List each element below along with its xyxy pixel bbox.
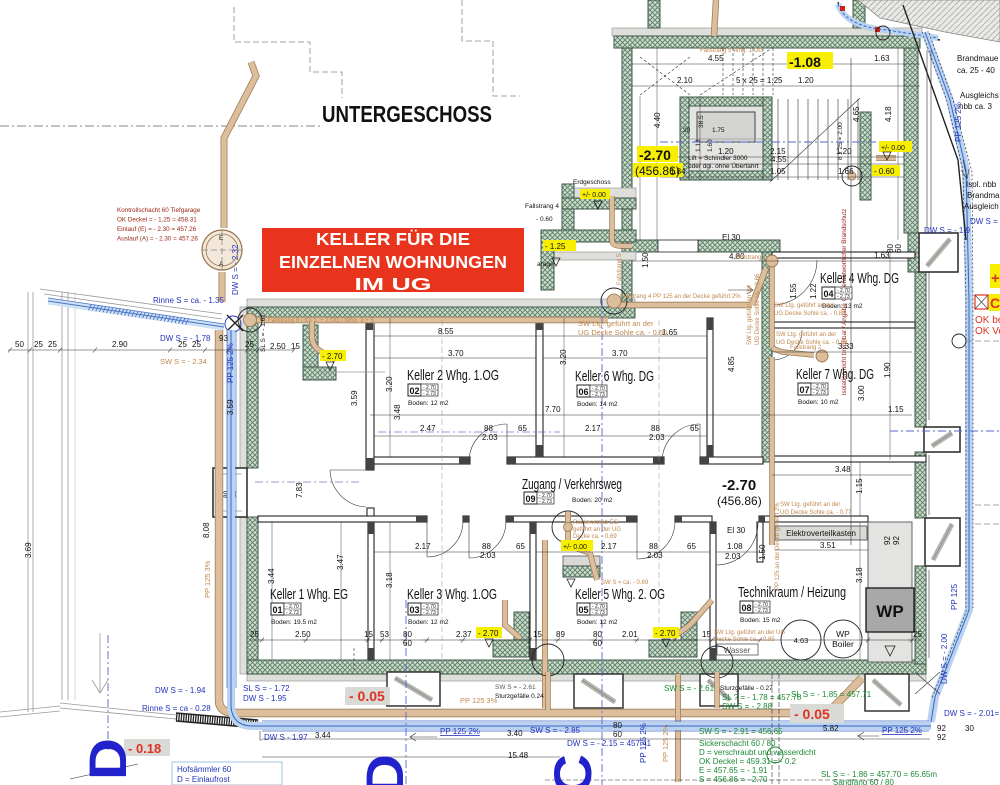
svg-text:Rinne S = ca - 0.28: Rinne S = ca - 0.28 <box>142 704 211 713</box>
svg-text:SW Ltg. geführt an der: SW Ltg. geführt an der <box>776 332 836 338</box>
svg-text:1.22: 1.22 <box>809 283 818 299</box>
svg-text:1.50: 1.50 <box>641 252 650 268</box>
svg-text:1.15: 1.15 <box>855 478 864 494</box>
svg-text:SW S = - 2.34: SW S = - 2.34 <box>160 357 207 366</box>
svg-text:+/- 0.00: +/- 0.00 <box>563 544 587 551</box>
svg-text:PP 125 2%: PP 125 2% <box>639 723 648 763</box>
svg-text:25: 25 <box>250 630 259 639</box>
svg-text:DW S = - 2.32: DW S = - 2.32 <box>231 244 240 295</box>
svg-text:DW S = - 1.94: DW S = - 1.94 <box>155 686 206 695</box>
svg-text:4.55: 4.55 <box>771 155 787 164</box>
svg-text:PP 125 2%: PP 125 2% <box>440 727 480 736</box>
svg-text:DW S - 1.95: DW S - 1.95 <box>243 694 287 703</box>
svg-text:1.55: 1.55 <box>789 283 798 299</box>
svg-text:- 2.73: - 2.73 <box>539 499 552 505</box>
svg-text:SW Ltg. geführt an der UG: SW Ltg. geführt an der UG <box>714 630 785 636</box>
svg-text:- 2.70: - 2.70 <box>322 352 343 361</box>
svg-text:06: 06 <box>579 387 589 397</box>
svg-text:2.90: 2.90 <box>112 340 128 349</box>
svg-text:DW S = - 1.9: DW S = - 1.9 <box>924 226 971 235</box>
svg-text:2.03: 2.03 <box>482 433 498 442</box>
svg-text:4.63: 4.63 <box>794 636 809 645</box>
svg-text:Boiler: Boiler <box>832 639 854 649</box>
svg-text:5 x 25 = 1.25: 5 x 25 = 1.25 <box>736 76 783 85</box>
svg-text:1.20: 1.20 <box>798 76 814 85</box>
svg-text:(456.86): (456.86) <box>717 494 762 508</box>
svg-text:OK be: OK be <box>975 315 1000 326</box>
svg-text:1.60: 1.60 <box>707 139 714 152</box>
svg-text:15: 15 <box>702 630 711 639</box>
svg-text:nbb ca. 3: nbb ca. 3 <box>959 102 992 111</box>
svg-text:05: 05 <box>579 605 589 615</box>
svg-text:15: 15 <box>291 342 300 351</box>
svg-text:El 30: El 30 <box>727 526 746 535</box>
svg-text:SW S = - 2.91 = 456.65: SW S = - 2.91 = 456.65 <box>699 727 783 736</box>
svg-text:El 30: El 30 <box>722 233 741 242</box>
svg-text:Kontrollschacht 60 Tiefgarage: Kontrollschacht 60 Tiefgarage <box>117 207 201 214</box>
svg-text:2.37: 2.37 <box>456 630 472 639</box>
svg-text:Boden: 12 m2: Boden: 12 m2 <box>408 619 449 626</box>
svg-text:88: 88 <box>649 542 658 551</box>
svg-text:- 2.70: - 2.70 <box>478 629 499 638</box>
svg-text:Fallstrang 1: Fallstrang 1 <box>735 255 767 261</box>
svg-text:Keller 6 Whg. DG: Keller 6 Whg. DG <box>575 369 654 385</box>
svg-text:WP: WP <box>876 602 903 621</box>
svg-text:Boden: 14 m2: Boden: 14 m2 <box>577 401 618 408</box>
svg-text:Sturzgefälle 0.24: Sturzgefälle 0.24 <box>495 693 544 700</box>
svg-text:3.70: 3.70 <box>448 349 464 358</box>
svg-text:Rinne S = ca. - 1.35: Rinne S = ca. - 1.35 <box>153 296 224 305</box>
svg-text:3.20: 3.20 <box>385 376 394 392</box>
svg-text:Boden: 10 m2: Boden: 10 m2 <box>798 399 839 406</box>
svg-text:Isol. nbb: Isol. nbb <box>966 180 997 189</box>
svg-text:88: 88 <box>651 424 660 433</box>
svg-text:- 2.73: - 2.73 <box>755 608 768 614</box>
svg-text:SW S = - 2.88: SW S = - 2.88 <box>722 702 773 711</box>
svg-text:Fallstrang 5: Fallstrang 5 <box>617 253 623 285</box>
svg-text:Zugang / Verkehrsweg: Zugang / Verkehrsweg <box>522 477 622 493</box>
svg-text:15: 15 <box>533 630 542 639</box>
svg-text:SL S = - 1.72: SL S = - 1.72 <box>243 684 290 693</box>
svg-text:2.17: 2.17 <box>601 542 617 551</box>
svg-text:30: 30 <box>965 724 974 733</box>
svg-text:04: 04 <box>824 289 834 299</box>
svg-text:25: 25 <box>34 340 43 349</box>
svg-text:1.15: 1.15 <box>888 405 904 414</box>
svg-text:DW S - 1.97: DW S - 1.97 <box>264 733 308 742</box>
svg-text:arage: arage <box>537 261 554 268</box>
svg-text:OK Deckel = - 1.25 = 458.31: OK Deckel = - 1.25 = 458.31 <box>117 217 197 224</box>
svg-text:8.08: 8.08 <box>202 522 211 538</box>
svg-text:08: 08 <box>742 603 752 613</box>
svg-text:- 2.70: - 2.70 <box>655 629 676 638</box>
svg-text:SL S = - 1.85 = 457.71: SL S = - 1.85 = 457.71 <box>791 690 872 699</box>
svg-text:SL ? = - 1.78 = 457.78: SL ? = - 1.78 = 457.78 <box>722 693 802 702</box>
svg-text:3.18: 3.18 <box>385 572 394 588</box>
svg-text:80: 80 <box>593 630 602 639</box>
svg-text:Decke ca. - 0.69: Decke ca. - 0.69 <box>573 534 617 540</box>
svg-text:SW S = - 2.61: SW S = - 2.61 <box>664 684 715 693</box>
svg-text:2.03: 2.03 <box>649 433 665 442</box>
svg-text:1.63: 1.63 <box>874 54 890 63</box>
svg-text:Sandfang 60 / 80: Sandfang 60 / 80 <box>833 778 894 785</box>
svg-text:3.48: 3.48 <box>393 404 402 420</box>
svg-text:07: 07 <box>800 385 810 395</box>
svg-text:Technikraum / Heizung: Technikraum / Heizung <box>738 585 846 601</box>
svg-text:-2.70: -2.70 <box>722 477 756 494</box>
svg-text:4.55: 4.55 <box>708 54 724 63</box>
svg-text:SW Ltg. geführt an der: SW Ltg. geführt an der <box>780 502 840 508</box>
svg-text:- 0.60: - 0.60 <box>536 216 553 223</box>
svg-text:Fallstrang 6 / Kü 1. + 2.OG /: Fallstrang 6 / Kü 1. + 2.OG / Whg. 3 + 5 <box>268 318 374 324</box>
svg-text:- 2.73: - 2.73 <box>423 391 436 397</box>
svg-text:Keller 3 Whg. 1.OG: Keller 3 Whg. 1.OG <box>407 587 497 603</box>
svg-text:1.08: 1.08 <box>727 542 743 551</box>
svg-text:EINZELNEN WOHNUNGEN: EINZELNEN WOHNUNGEN <box>279 252 507 272</box>
svg-text:- 2.73: - 2.73 <box>592 392 605 398</box>
svg-text:Boden: 15 m2: Boden: 15 m2 <box>740 617 781 624</box>
svg-text:2.03: 2.03 <box>725 552 741 561</box>
svg-text:7.83: 7.83 <box>295 482 304 498</box>
svg-text:C: C <box>544 754 603 785</box>
svg-text:- 0.05: - 0.05 <box>794 706 830 722</box>
svg-text:1.20: 1.20 <box>836 147 852 156</box>
svg-text:4.85: 4.85 <box>727 356 736 372</box>
svg-text:+/- 0.00: +/- 0.00 <box>881 145 905 152</box>
svg-text:2.10: 2.10 <box>677 76 693 85</box>
svg-text:-1.08: -1.08 <box>789 54 821 70</box>
svg-text:1.18: 1.18 <box>695 139 702 152</box>
svg-text:ca. 25 - 40: ca. 25 - 40 <box>957 66 995 75</box>
svg-text:PP 125 3%: PP 125 3% <box>460 696 498 705</box>
svg-text:3.00: 3.00 <box>857 385 866 401</box>
svg-text:geführt an der UG: geführt an der UG <box>573 527 621 533</box>
svg-text:1.05: 1.05 <box>770 167 786 176</box>
svg-text:- 2.73: - 2.73 <box>592 610 605 616</box>
svg-text:Brandma: Brandma <box>967 191 1000 200</box>
svg-text:DW S = - 2.01= 457.55: DW S = - 2.01= 457.55 <box>944 709 1000 718</box>
svg-text:3.48: 3.48 <box>835 465 851 474</box>
svg-text:+: + <box>991 270 1000 287</box>
svg-text:15.48: 15.48 <box>508 751 529 760</box>
svg-text:- 0.05: - 0.05 <box>349 688 385 704</box>
svg-text:65: 65 <box>516 542 525 551</box>
svg-text:89: 89 <box>556 630 565 639</box>
svg-text:02: 02 <box>410 386 420 396</box>
svg-text:Keller 4 Whg. DG: Keller 4 Whg. DG <box>820 271 899 287</box>
svg-text:DW S = -: DW S = - <box>970 217 1000 226</box>
svg-text:Keller 7 Whg. DG: Keller 7 Whg. DG <box>796 367 874 383</box>
svg-text:2.01: 2.01 <box>622 630 638 639</box>
svg-text:1.50: 1.50 <box>758 544 767 560</box>
svg-text:- 2.73: - 2.73 <box>423 610 436 616</box>
svg-text:80: 80 <box>403 630 412 639</box>
svg-text:PP 125 2%: PP 125 2% <box>226 343 235 383</box>
svg-text:3.59: 3.59 <box>350 390 359 406</box>
svg-text:Boden: 12 m2: Boden: 12 m2 <box>577 619 618 626</box>
svg-text:C: C <box>990 295 1000 311</box>
svg-text:D = verschraubt und wasserdich: D = verschraubt und wasserdicht <box>699 748 817 757</box>
svg-text:Lift = Schindler 3000: Lift = Schindler 3000 <box>688 155 748 162</box>
svg-text:20: 20 <box>683 127 691 134</box>
svg-text:PP 125 2%: PP 125 2% <box>882 726 922 735</box>
svg-text:Decke Sohle ca. - 0.85: Decke Sohle ca. - 0.85 <box>714 637 775 643</box>
svg-text:65: 65 <box>687 542 696 551</box>
svg-text:DW S = - 1.78: DW S = - 1.78 <box>160 334 211 343</box>
svg-text:92: 92 <box>883 536 892 545</box>
svg-text:2.47: 2.47 <box>420 424 436 433</box>
svg-text:5.82: 5.82 <box>823 724 839 733</box>
svg-text:Ausgleichs: Ausgleichs <box>960 91 999 100</box>
svg-text:Elektroverteilkasten: Elektroverteilkasten <box>786 529 856 538</box>
svg-text:Fallstrang 4 PP 125 an der De: Fallstrang 4 PP 125 an der Decke geführt… <box>620 294 741 300</box>
svg-text:E: E <box>219 235 224 242</box>
svg-text:-2.70: -2.70 <box>639 147 671 163</box>
svg-text:Keller 1 Whg. EG: Keller 1 Whg. EG <box>270 587 348 603</box>
svg-text:Boden: 12 m2: Boden: 12 m2 <box>408 400 449 407</box>
svg-text:Auslauf (A) = - 2.30 = 457.26: Auslauf (A) = - 2.30 = 457.26 <box>117 236 198 243</box>
svg-text:Fallstrang 2: Fallstrang 2 <box>790 345 822 351</box>
svg-text:Fallstrang 5 Whg. 1.OG: Fallstrang 5 Whg. 1.OG <box>700 48 763 54</box>
svg-text:4.18: 4.18 <box>884 106 893 122</box>
svg-text:DW S = - 2.00: DW S = - 2.00 <box>940 633 949 684</box>
svg-text:53: 53 <box>380 630 389 639</box>
svg-text:SW S = - 2.61: SW S = - 2.61 <box>495 684 536 691</box>
svg-text:KELLER FÜR DIE: KELLER FÜR DIE <box>316 229 470 249</box>
svg-text:- 2.73: - 2.73 <box>286 610 299 616</box>
svg-text:92: 92 <box>937 724 946 733</box>
svg-text:Keller 2 Whg. 1.OG: Keller 2 Whg. 1.OG <box>407 368 499 384</box>
svg-text:UG Decke Sohle ca. - 0.88: UG Decke Sohle ca. - 0.88 <box>774 311 846 317</box>
svg-text:93: 93 <box>219 334 228 343</box>
svg-text:Boden: 20 m2: Boden: 20 m2 <box>572 497 613 504</box>
svg-text:3.69: 3.69 <box>24 542 33 558</box>
svg-text:3.44: 3.44 <box>315 731 331 740</box>
svg-text:3.59: 3.59 <box>226 399 235 415</box>
svg-text:UG Decke Sohle ca. - 0.60: UG Decke Sohle ca. - 0.60 <box>578 328 667 337</box>
svg-text:Ausgleich: Ausgleich <box>964 202 999 211</box>
svg-text:Einlauf (E) = - 2.30 = 457.26: Einlauf (E) = - 2.30 = 457.26 <box>117 226 197 233</box>
svg-text:2.17: 2.17 <box>415 542 431 551</box>
svg-text:92: 92 <box>892 536 901 545</box>
svg-text:oder dgl. ohne Überfahrt: oder dgl. ohne Überfahrt <box>688 162 759 170</box>
svg-text:60: 60 <box>593 639 602 648</box>
svg-text:3.18: 3.18 <box>855 567 864 583</box>
svg-text:80: 80 <box>613 721 622 730</box>
svg-text:SW Ltg. geführt an der: SW Ltg. geführt an der <box>747 285 753 345</box>
svg-text:60: 60 <box>894 244 903 253</box>
svg-text:65: 65 <box>690 424 699 433</box>
svg-text:25: 25 <box>913 630 922 639</box>
svg-text:- 2.73: - 2.73 <box>813 390 826 396</box>
svg-text:03: 03 <box>410 605 420 615</box>
svg-text:E = 457.65 = - 1.91: E = 457.65 = - 1.91 <box>699 766 768 775</box>
svg-text:+/- 0.00: +/- 0.00 <box>582 192 606 199</box>
svg-text:IM UG: IM UG <box>355 274 432 294</box>
svg-text:3.20: 3.20 <box>559 349 568 365</box>
svg-text:09: 09 <box>526 494 536 504</box>
svg-text:8.55: 8.55 <box>438 327 454 336</box>
svg-text:3.44: 3.44 <box>267 568 276 584</box>
svg-text:92: 92 <box>937 733 946 742</box>
svg-text:Erdgeschoss: Erdgeschoss <box>573 179 611 186</box>
svg-text:25: 25 <box>48 340 57 349</box>
svg-text:50: 50 <box>15 340 24 349</box>
svg-text:Sturzgefälle - 0.27: Sturzgefälle - 0.27 <box>720 685 773 692</box>
svg-text:4.40: 4.40 <box>653 112 662 128</box>
svg-text:3.47: 3.47 <box>336 554 345 570</box>
svg-text:SW Ltg. geführt an der: SW Ltg. geführt an der <box>774 303 834 309</box>
svg-text:PP 125 2%: PP 125 2% <box>661 724 670 762</box>
svg-text:- 0.60: - 0.60 <box>874 167 895 176</box>
svg-text:4.65: 4.65 <box>852 106 861 122</box>
svg-text:1.20: 1.20 <box>718 147 734 156</box>
svg-text:WP: WP <box>836 629 850 639</box>
svg-text:UG Decke Sohle ca. - 0.77: UG Decke Sohle ca. - 0.77 <box>780 510 852 516</box>
svg-text:15: 15 <box>364 630 373 639</box>
svg-text:Boden: 19.5 m2: Boden: 19.5 m2 <box>271 619 317 626</box>
svg-text:PP 125 3%: PP 125 3% <box>203 560 212 598</box>
svg-text:- 2.73: - 2.73 <box>837 294 850 300</box>
svg-text:Keller 5 Whg. 2. OG: Keller 5 Whg. 2. OG <box>575 587 665 603</box>
svg-text:SW Ltg. geführt an der: SW Ltg. geführt an der <box>578 319 654 328</box>
svg-text:01: 01 <box>273 605 283 615</box>
svg-text:- 1.25: - 1.25 <box>545 242 566 251</box>
svg-text:1.84: 1.84 <box>670 167 686 176</box>
svg-text:2.03: 2.03 <box>480 551 496 560</box>
svg-text:SW S = - 2.85: SW S = - 2.85 <box>530 726 581 735</box>
svg-text:38.5: 38.5 <box>698 115 705 128</box>
svg-text:3.51: 3.51 <box>820 541 836 550</box>
svg-text:D = Einlaufrost: D = Einlaufrost <box>177 775 230 784</box>
svg-text:UG Decke Sohle ca. - 0.66: UG Decke Sohle ca. - 0.66 <box>755 273 761 345</box>
svg-text:2.50: 2.50 <box>295 630 311 639</box>
svg-text:A: A <box>219 261 224 268</box>
svg-text:2.03: 2.03 <box>647 551 663 560</box>
svg-text:OK Ve: OK Ve <box>975 326 1000 337</box>
svg-text:60: 60 <box>613 730 622 739</box>
svg-text:Fallstrang 4: Fallstrang 4 <box>525 203 559 210</box>
svg-text:88: 88 <box>482 542 491 551</box>
svg-text:PP 125: PP 125 <box>950 583 959 610</box>
svg-text:Brandmaue: Brandmaue <box>957 54 999 63</box>
svg-text:3.70: 3.70 <box>612 349 628 358</box>
svg-text:Hofsämmler 60: Hofsämmler 60 <box>177 765 232 774</box>
svg-text:SW S = ca. - 0.69: SW S = ca. - 0.69 <box>601 580 649 586</box>
svg-text:88: 88 <box>484 424 493 433</box>
svg-text:60: 60 <box>403 639 412 648</box>
svg-text:25: 25 <box>245 340 254 349</box>
svg-text:SL S = - 1.67: SL S = - 1.67 <box>260 314 267 352</box>
svg-text:S = 456.86 = - 2.70: S = 456.86 = - 2.70 <box>699 775 768 784</box>
svg-text:1.90: 1.90 <box>883 362 892 378</box>
svg-text:7.70: 7.70 <box>545 405 561 414</box>
svg-text:1.66: 1.66 <box>838 167 854 176</box>
svg-text:D: D <box>79 738 138 780</box>
svg-text:D: D <box>356 754 415 785</box>
svg-text:UNTERGESCHOSS: UNTERGESCHOSS <box>322 101 492 127</box>
svg-text:65: 65 <box>518 424 527 433</box>
svg-text:2.17: 2.17 <box>585 424 601 433</box>
svg-text:Sickerschacht 60 / 80: Sickerschacht 60 / 80 <box>699 739 776 748</box>
svg-text:2.50: 2.50 <box>270 342 286 351</box>
svg-text:Rückenstaub EG: Rückenstaub EG <box>573 520 619 526</box>
svg-text:3.40: 3.40 <box>507 729 523 738</box>
svg-text:1.75: 1.75 <box>712 127 725 134</box>
